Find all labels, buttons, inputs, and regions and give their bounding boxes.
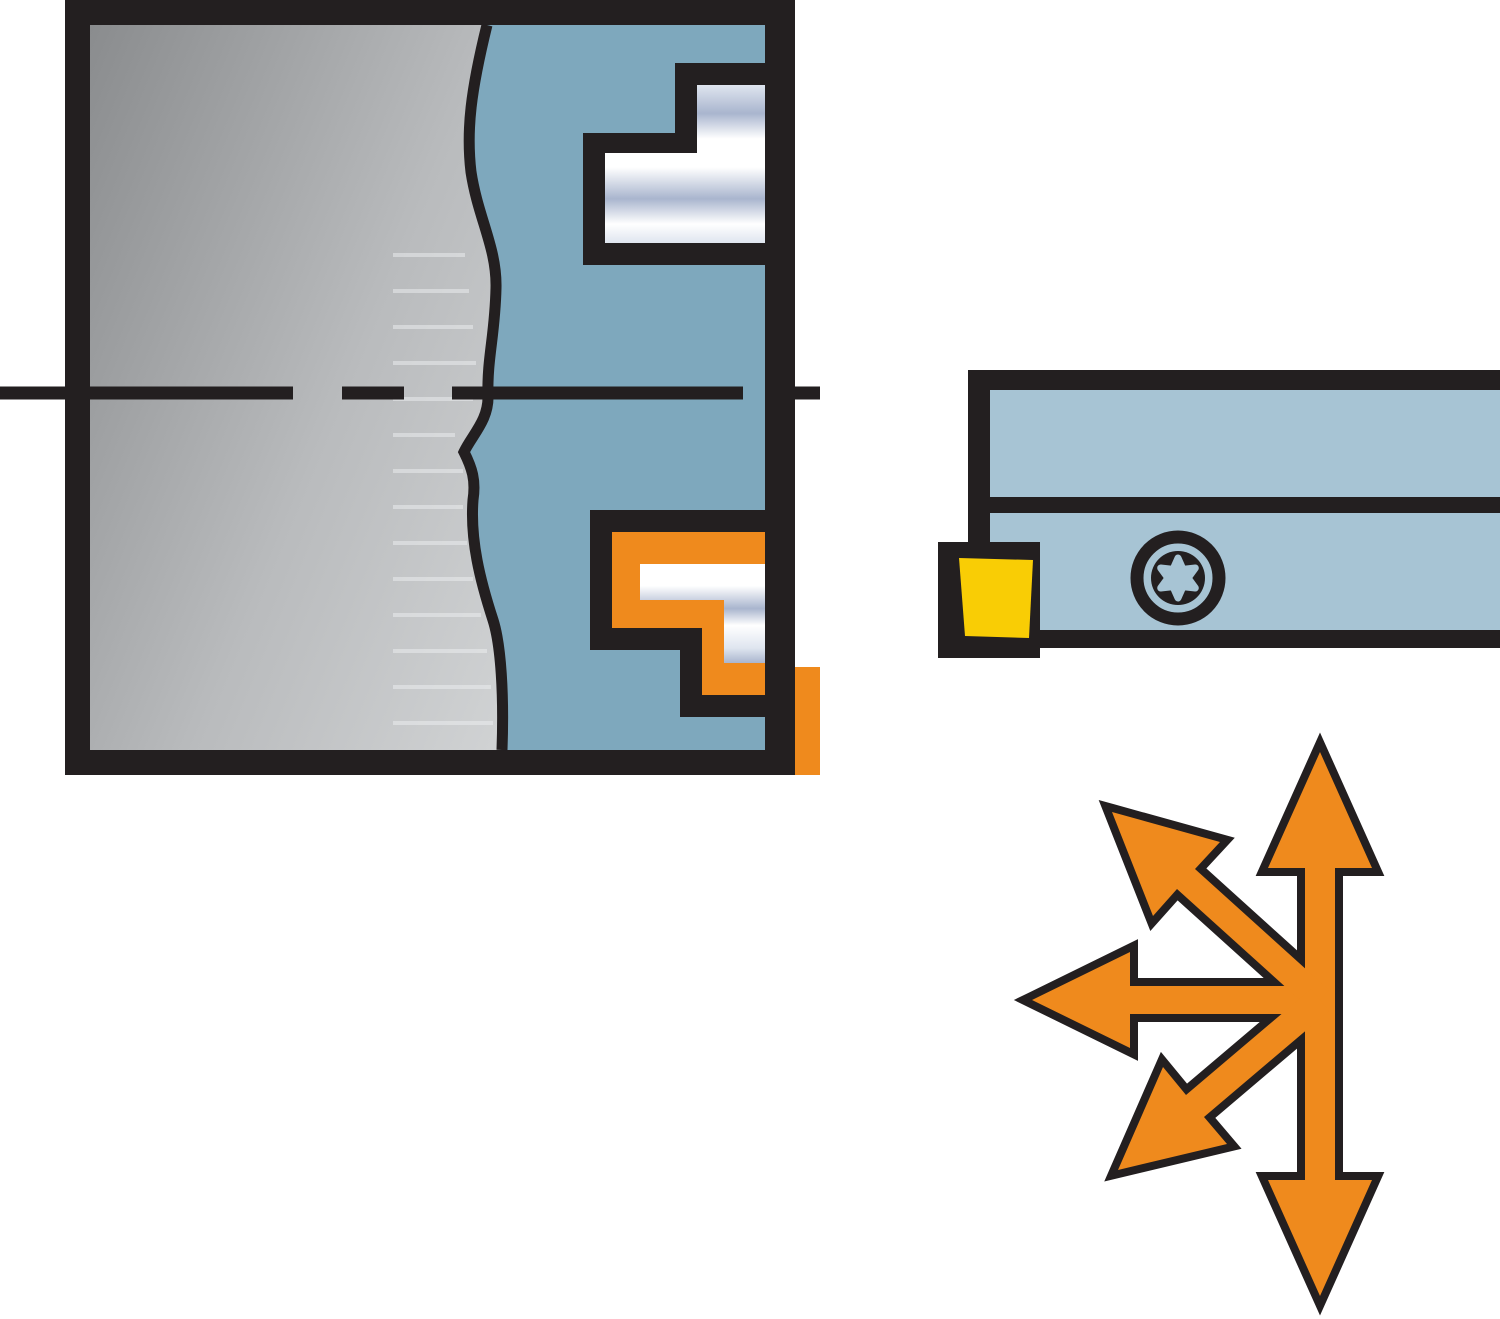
allowance-corner (795, 667, 820, 775)
drawing (0, 0, 1500, 1319)
workpiece (0, 0, 820, 775)
toolholder (938, 370, 1500, 658)
toolholder-blade-lower (990, 513, 1500, 630)
toolholder-shank-upper (990, 390, 1500, 497)
cutting-insert (959, 558, 1033, 638)
illustration-canvas (0, 0, 1500, 1319)
